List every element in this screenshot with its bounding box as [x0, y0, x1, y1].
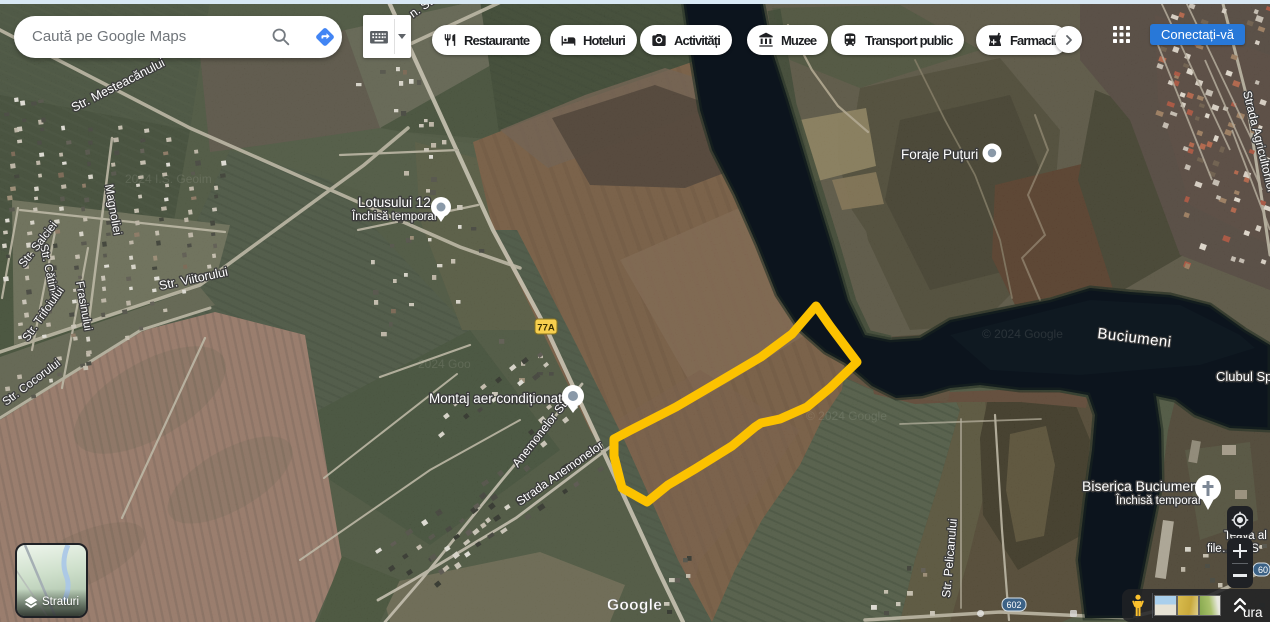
svg-text:Închisă temporar: Închisă temporar	[1115, 494, 1202, 507]
svg-text:2024 Goo: 2024 Goo	[418, 357, 471, 371]
svg-text:Închisă temporar: Închisă temporar	[351, 210, 438, 223]
svg-text:Montaj aer condiționat: Montaj aer condiționat	[429, 391, 562, 406]
svg-text:Google: Google	[607, 597, 662, 614]
svg-text:© 2024 Google: © 2024 Google	[982, 327, 1063, 341]
svg-text:2024 I.S. Geoim: 2024 I.S. Geoim	[125, 172, 212, 186]
svg-text:Foraje Puțuri: Foraje Puțuri	[901, 147, 978, 162]
svg-text:Clubul Sp: Clubul Sp	[1216, 369, 1270, 384]
svg-text:Lotusului 12: Lotusului 12	[358, 195, 431, 210]
svg-text:© 2024 Google: © 2024 Google	[806, 409, 887, 423]
svg-text:Biserica Buciumeni: Biserica Buciumeni	[1082, 478, 1201, 494]
svg-text:77A: 77A	[537, 323, 555, 334]
svg-text:60: 60	[1258, 565, 1268, 575]
svg-text:602: 602	[1006, 600, 1021, 610]
